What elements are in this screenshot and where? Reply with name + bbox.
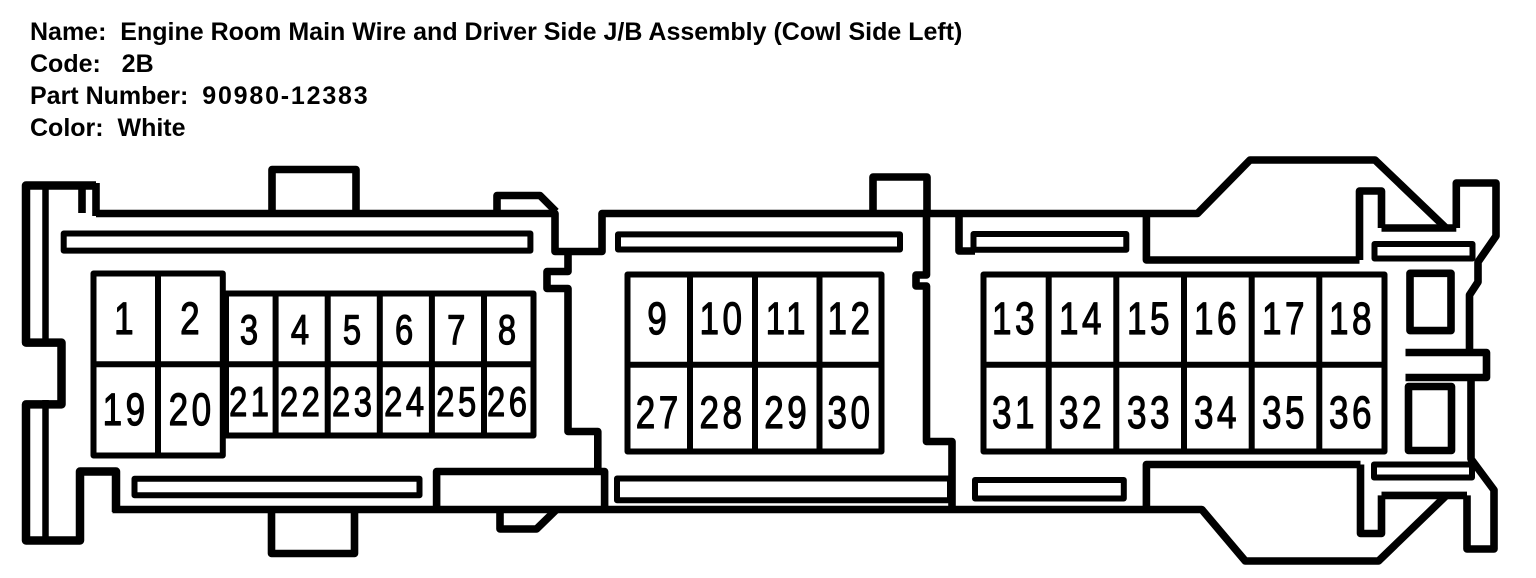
svg-text:25: 25	[436, 378, 479, 425]
svg-text:10: 10	[699, 293, 745, 344]
svg-text:4: 4	[291, 306, 313, 353]
svg-text:27: 27	[636, 387, 682, 438]
svg-text:17: 17	[1262, 293, 1308, 344]
svg-text:29: 29	[764, 387, 810, 438]
svg-text:6: 6	[395, 306, 417, 353]
svg-text:31: 31	[992, 387, 1038, 438]
svg-text:20: 20	[169, 384, 215, 435]
svg-text:21: 21	[229, 378, 272, 425]
svg-text:36: 36	[1329, 387, 1375, 438]
svg-text:35: 35	[1262, 387, 1308, 438]
svg-text:12: 12	[827, 293, 873, 344]
svg-text:1: 1	[114, 293, 137, 344]
svg-text:3: 3	[240, 306, 262, 353]
svg-text:18: 18	[1329, 293, 1375, 344]
svg-text:16: 16	[1194, 293, 1240, 344]
svg-text:14: 14	[1059, 293, 1105, 344]
svg-text:23: 23	[332, 378, 375, 425]
svg-text:2: 2	[180, 293, 203, 344]
svg-text:32: 32	[1059, 387, 1105, 438]
svg-text:24: 24	[384, 378, 427, 425]
svg-text:11: 11	[766, 293, 809, 344]
svg-text:33: 33	[1127, 387, 1173, 438]
svg-text:30: 30	[827, 387, 873, 438]
svg-text:15: 15	[1127, 293, 1173, 344]
svg-text:34: 34	[1194, 387, 1240, 438]
svg-text:22: 22	[280, 378, 323, 425]
svg-text:9: 9	[647, 293, 670, 344]
svg-text:28: 28	[699, 387, 745, 438]
svg-text:26: 26	[487, 378, 530, 425]
svg-text:7: 7	[447, 306, 469, 353]
svg-text:5: 5	[343, 306, 365, 353]
svg-text:19: 19	[103, 384, 149, 435]
svg-text:8: 8	[498, 306, 520, 353]
svg-text:13: 13	[992, 293, 1038, 344]
